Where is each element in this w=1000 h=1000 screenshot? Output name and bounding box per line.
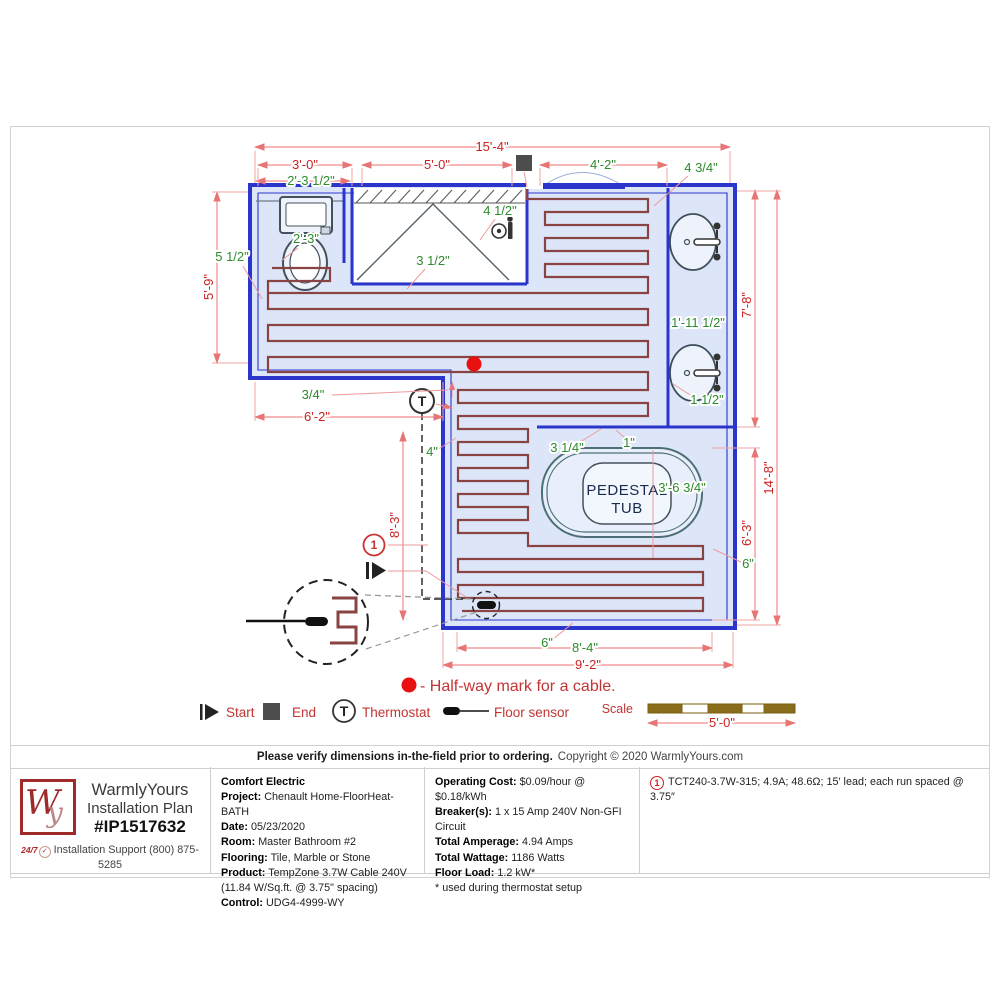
cable-spec-text: TCT240-3.7W-315; 4.9A; 48.6Ω; 15′ lead; … <box>650 776 964 803</box>
floor-plan-drawing: PEDESTAL TUB T <box>0 0 1000 745</box>
floor-sensor-icon <box>443 707 489 715</box>
dimension-label: 7'-8" <box>739 292 754 318</box>
legend: Start End T Thermostat Floor sensor <box>200 700 570 722</box>
legend-floor-sensor-label: Floor sensor <box>494 705 570 720</box>
dimension-label: 1 1/2" <box>690 392 724 407</box>
brand-column: W y WarmlyYours Installation Plan #IP151… <box>10 767 211 873</box>
dimension-label: 2'-3" <box>293 231 319 246</box>
dimension-label: 14'-8" <box>761 461 776 495</box>
legend-end-label: End <box>292 705 316 720</box>
dimension-label: 4" <box>426 444 438 459</box>
project-row: Control: UDG4-4999-WY <box>221 896 414 911</box>
installation-plan-page: PEDESTAL TUB T <box>0 0 1000 1000</box>
entry-door <box>543 183 625 189</box>
legend-thermostat-label: Thermostat <box>362 705 431 720</box>
dimension-label: 3'-6 3/4" <box>658 480 706 495</box>
cable-number-badge: 1 <box>650 776 664 790</box>
dimension-label: 5'-0" <box>709 715 735 730</box>
dimension-label: 4 1/2" <box>483 203 517 218</box>
scale-label: Scale <box>602 702 633 716</box>
support-phone-line1: Installation Support (800) 875- <box>54 844 199 856</box>
dimension-label: 8'-3" <box>387 512 402 538</box>
electrical-row: Total Amperage: 4.94 Amps <box>435 835 629 850</box>
dimension-label: 6" <box>742 556 754 571</box>
dimension-label: 15'-4" <box>475 139 509 154</box>
project-row: Room: Master Bathroom #2 <box>221 835 414 850</box>
svg-text:T: T <box>418 393 427 409</box>
electrical-column: Operating Cost: $0.09/hour @ $0.18/kWh B… <box>425 767 640 873</box>
dimension-label: 3/4" <box>302 387 325 402</box>
svg-text:1: 1 <box>371 538 378 552</box>
copyright-text: Copyright © 2020 WarmlyYours.com <box>558 751 743 763</box>
dimension-label: 6" <box>541 635 553 650</box>
halfway-legend-dot <box>402 678 417 693</box>
dimension-label: 1'-11 1/2" <box>671 315 725 330</box>
project-company: Comfort Electric <box>221 776 305 788</box>
start-icon <box>200 704 219 720</box>
halfway-note-text: - Half-way mark for a cable. <box>420 678 616 695</box>
dimension-label: 6'-2" <box>304 409 330 424</box>
cable-number-callout: 1 <box>364 535 385 556</box>
tub-label-line2: TUB <box>611 500 643 517</box>
end-icon <box>263 703 280 720</box>
cable-spec-column: 1TCT240-3.7W-315; 4.9A; 48.6Ω; 15′ lead;… <box>640 767 990 873</box>
verify-notice-bar: Please verify dimensions in-the-field pr… <box>10 745 990 769</box>
halfway-mark-dot <box>467 357 482 372</box>
24-7-badge: 24/7 <box>21 845 38 855</box>
dimension-label: 2'-3 1/2" <box>287 173 335 188</box>
thermostat-icon: T <box>333 700 355 722</box>
cable-start-marker <box>366 562 386 579</box>
dimension-label: 9'-2" <box>575 657 601 672</box>
dimension-label: 3 1/4" <box>550 440 584 455</box>
dimension-label: 4'-2" <box>590 157 616 172</box>
dimension-label: 1" <box>623 435 635 450</box>
brand-plan-title: Installation Plan <box>76 800 204 817</box>
support-phone-line2: 5285 <box>98 859 122 871</box>
info-table: W y WarmlyYours Installation Plan #IP151… <box>10 767 990 874</box>
verify-notice-bold: Please verify dimensions in-the-field pr… <box>257 751 553 763</box>
halfway-note: - Half-way mark for a cable. <box>402 678 616 696</box>
dimension-label: 5'-0" <box>424 157 450 172</box>
project-column: Comfort Electric Project: Chenault Home-… <box>211 767 425 873</box>
electrical-row: Breaker(s): 1 x 15 Amp 240V Non-GFI Circ… <box>435 805 629 835</box>
dimension-label: 3 1/2" <box>416 253 450 268</box>
dimension-label: 5 1/2" <box>215 249 249 264</box>
brand-name: WarmlyYours <box>76 781 204 800</box>
plan-number: #IP1517632 <box>76 817 204 837</box>
dimension-label: 8'-4" <box>572 640 598 655</box>
cable-end-marker <box>516 155 532 171</box>
electrical-row: Total Wattage: 1186 Watts <box>435 851 629 866</box>
svg-text:T: T <box>340 703 349 719</box>
warmlyyours-logo: W y <box>20 779 76 835</box>
dimension-label: 3'-0" <box>292 157 318 172</box>
tub-label-line1: PEDESTAL <box>586 482 667 499</box>
support-line: 24/7✓Installation Support (800) 875- 528… <box>10 843 210 872</box>
project-row: Product: TempZone 3.7W Cable 240V (11.84… <box>221 866 414 896</box>
door-opening <box>526 181 544 189</box>
project-row: Flooring: Tile, Marble or Stone <box>221 851 414 866</box>
project-row: Project: Chenault Home-FloorHeat-BATH <box>221 790 414 820</box>
check-icon: ✓ <box>39 846 51 858</box>
logo-letter-y: y <box>47 796 63 829</box>
electrical-row: Operating Cost: $0.09/hour @ $0.18/kWh <box>435 775 629 805</box>
scale-bar: Scale <box>602 702 795 716</box>
dimension-label: 5'-9" <box>201 274 216 300</box>
dimension-label: 4 3/4" <box>684 160 718 175</box>
legend-start-label: Start <box>226 705 255 720</box>
dimension-label: 6'-3" <box>739 520 754 546</box>
electrical-note: * used during thermostat setup <box>435 881 629 896</box>
electrical-row: Floor Load: 1.2 kW* <box>435 866 629 881</box>
project-row: Date: 05/23/2020 <box>221 820 414 835</box>
